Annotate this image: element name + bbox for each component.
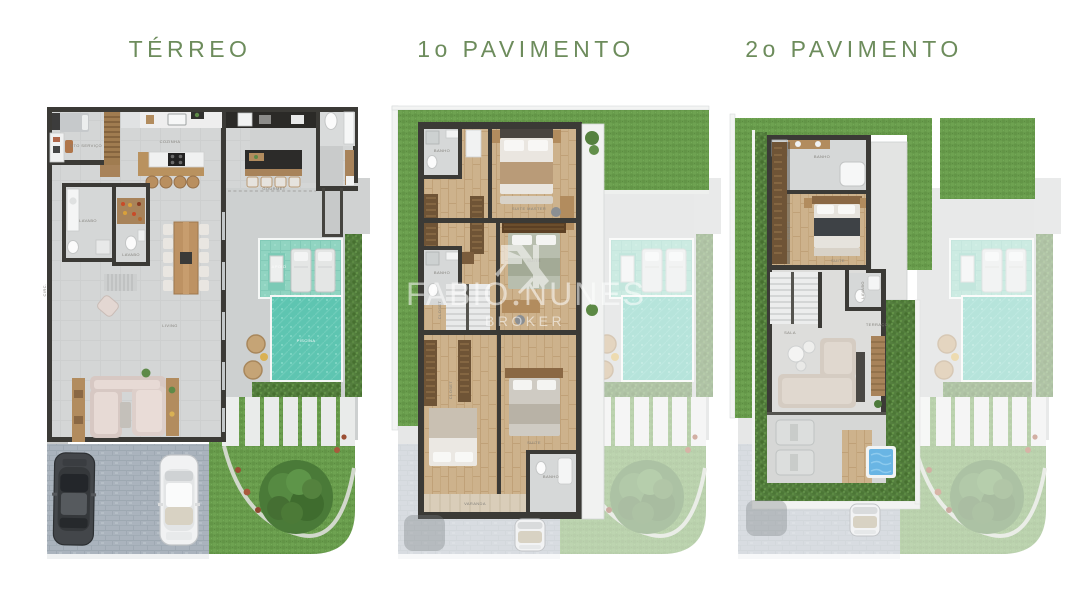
svg-text:BROKER: BROKER: [485, 313, 565, 329]
svg-text:LIVING: LIVING: [162, 323, 178, 328]
svg-text:SALA: SALA: [784, 330, 796, 335]
svg-text:2o PAVIMENTO: 2o PAVIMENTO: [745, 36, 963, 62]
svg-text:BANHO: BANHO: [814, 154, 830, 159]
svg-text:TÉRREO: TÉRREO: [129, 36, 252, 62]
svg-text:SUITE: SUITE: [527, 440, 541, 445]
svg-text:NUNES: NUNES: [524, 276, 646, 312]
svg-text:1o PAVIMENTO: 1o PAVIMENTO: [417, 36, 635, 62]
svg-text:BANHO: BANHO: [543, 474, 559, 479]
svg-text:APOIO: APOIO: [272, 264, 287, 269]
svg-text:FABIO: FABIO: [406, 276, 510, 312]
svg-text:LAVABO: LAVABO: [122, 252, 140, 257]
svg-text:PISCINA: PISCINA: [297, 338, 316, 343]
svg-text:CIRC.: CIRC.: [42, 284, 47, 297]
svg-text:LAVABO: LAVABO: [79, 218, 97, 223]
svg-text:SUITE MASTER: SUITE MASTER: [512, 206, 546, 211]
svg-text:COZINHA: COZINHA: [160, 139, 181, 144]
svg-text:SUITE: SUITE: [831, 258, 845, 263]
svg-text:CLOSET: CLOSET: [786, 221, 791, 240]
svg-text:BANHO: BANHO: [434, 270, 450, 275]
svg-text:TERRAÇO: TERRAÇO: [866, 322, 888, 327]
svg-text:GOURMET: GOURMET: [262, 186, 285, 191]
svg-text:LAVABO: LAVABO: [860, 281, 865, 299]
svg-text:QTO SERVIÇO: QTO SERVIÇO: [70, 143, 102, 148]
svg-text:BANHO: BANHO: [434, 148, 450, 153]
svg-text:CLOSET: CLOSET: [448, 381, 453, 400]
svg-text:VARANDA: VARANDA: [464, 501, 486, 506]
